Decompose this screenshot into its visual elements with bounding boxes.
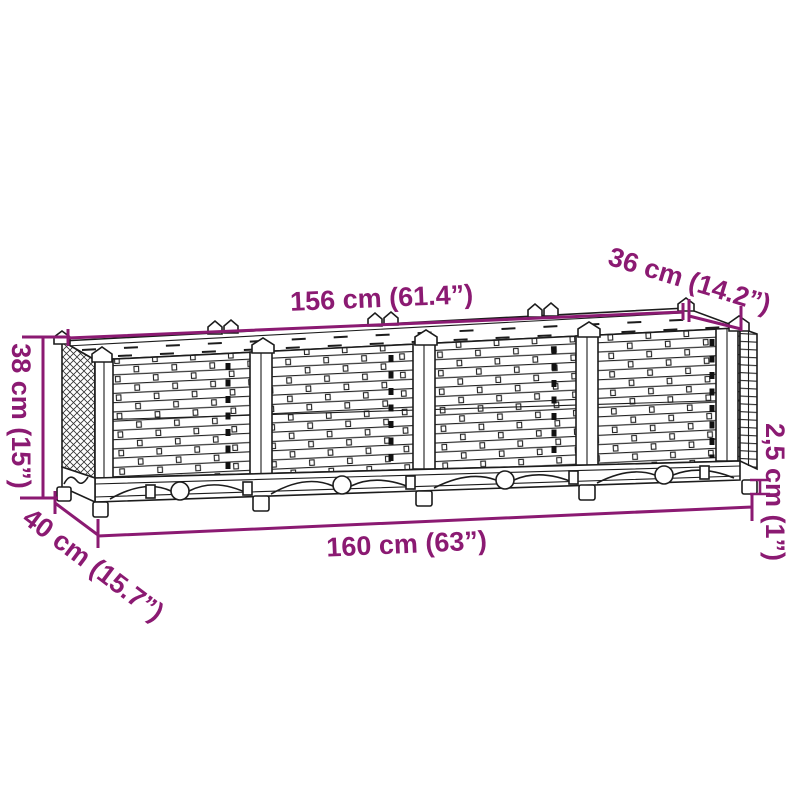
planter-left-panel xyxy=(62,341,95,478)
dimension-height: 38 cm (15”) xyxy=(6,337,70,498)
skirt-peg xyxy=(569,471,578,484)
dim-label-bottom-depth: 40 cm (15.7”) xyxy=(17,502,169,627)
skirt-peg xyxy=(243,482,252,495)
dim-label-bottom-width: 160 cm (63”) xyxy=(326,525,488,562)
dim-label-height: 38 cm (15”) xyxy=(6,343,36,489)
planter-illustration xyxy=(54,298,757,517)
skirt-peg xyxy=(406,476,415,489)
skirt-ring xyxy=(171,482,189,500)
skirt-ring xyxy=(655,466,673,484)
planter-right-end-panel xyxy=(740,328,757,469)
dim-label-foot-height: 2,5 cm (1”) xyxy=(760,423,790,561)
skirt-ring xyxy=(333,476,351,494)
skirt-peg xyxy=(700,466,709,479)
diagram-canvas: 156 cm (61.4”) 36 cm (14.2”) 38 cm (15”)… xyxy=(0,0,800,800)
skirt-peg xyxy=(146,485,155,498)
skirt-ring xyxy=(496,471,514,489)
product-dimension-diagram: 156 cm (61.4”) 36 cm (14.2”) 38 cm (15”)… xyxy=(0,0,800,800)
dim-label-top-width: 156 cm (61.4”) xyxy=(290,279,474,317)
